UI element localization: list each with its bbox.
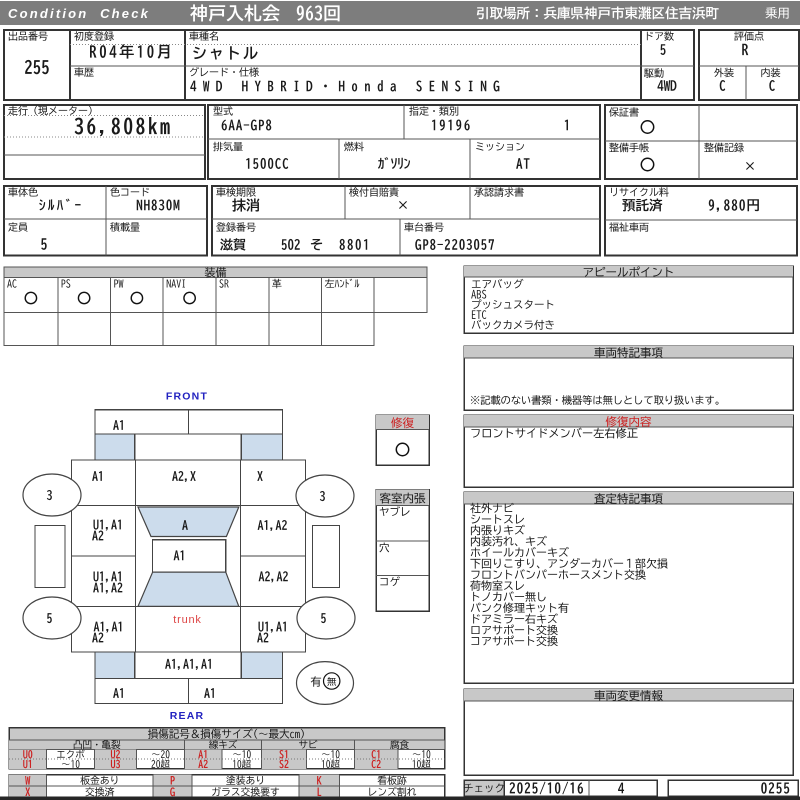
svg-text:FRONT: FRONT [166, 391, 208, 403]
svg-text:trunk: trunk [173, 614, 201, 626]
svg-text:REAR: REAR [170, 710, 205, 722]
svg-text:Condition Check: Condition Check [8, 6, 150, 21]
